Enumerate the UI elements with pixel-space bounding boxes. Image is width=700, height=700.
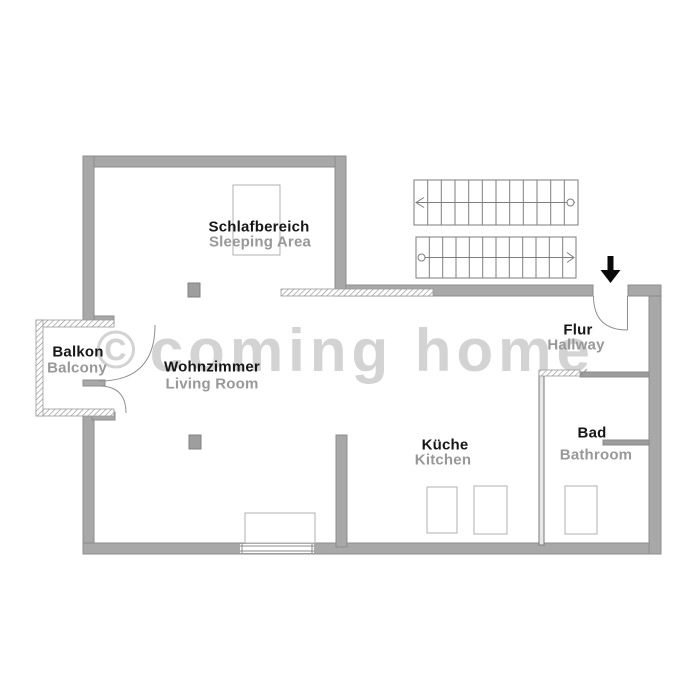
stairs-lower-flight	[416, 237, 576, 278]
bathroom-fixture	[565, 486, 597, 534]
balcony-door	[99, 325, 155, 413]
floor-plan-canvas: © coming home	[0, 0, 700, 700]
entrance-arrow-icon	[601, 256, 621, 283]
walk-line-start	[418, 254, 425, 261]
wall-top-right-b	[628, 285, 661, 296]
living-room-window	[240, 513, 315, 553]
gallery-railing	[281, 289, 433, 296]
room-label-balcony-de: Balkon	[52, 344, 103, 361]
bathroom-door-glazing	[539, 370, 580, 376]
wall-left-lower	[83, 413, 94, 554]
wall-sleeping-divider	[335, 156, 346, 296]
column-lower	[189, 435, 201, 449]
room-label-bathroom-de: Bad	[578, 425, 607, 442]
balcony-edge-top	[36, 320, 114, 327]
column-upper	[188, 283, 200, 297]
wall-kitchen-divider	[336, 435, 347, 547]
entrance-door	[594, 296, 628, 330]
room-label-kitchen-en: Kitchen	[415, 452, 471, 469]
wall-top-sleeping	[83, 156, 346, 167]
window-sill	[245, 513, 315, 543]
kitchen-units	[427, 486, 507, 534]
wall-bathroom-top	[580, 372, 649, 377]
door-swing-arc-upper	[99, 325, 155, 381]
room-label-balcony-en: Balcony	[47, 360, 107, 377]
wall-left-upper	[83, 156, 94, 323]
door-swing-arc	[594, 296, 628, 330]
wall-bottom	[83, 543, 661, 554]
room-label-bathroom-en: Bathroom	[560, 447, 632, 464]
walk-line-start	[567, 199, 574, 206]
balcony-edge-left	[36, 320, 43, 416]
hatched-elements	[36, 289, 587, 416]
wall-right	[649, 285, 661, 554]
wall-bathroom-left	[539, 371, 544, 545]
room-label-hallway-en: Hallway	[547, 337, 604, 354]
room-label-living-de: Wohnzimmer	[164, 359, 260, 376]
wall-bathroom-stub	[603, 440, 649, 445]
stairs-upper-flight	[414, 180, 578, 225]
balcony-edge-bottom	[36, 409, 114, 416]
room-label-living-en: Living Room	[165, 376, 258, 393]
room-label-sleeping-en: Sleeping Area	[209, 234, 311, 251]
kitchen-unit-2	[474, 486, 507, 534]
kitchen-unit-1	[427, 487, 457, 533]
